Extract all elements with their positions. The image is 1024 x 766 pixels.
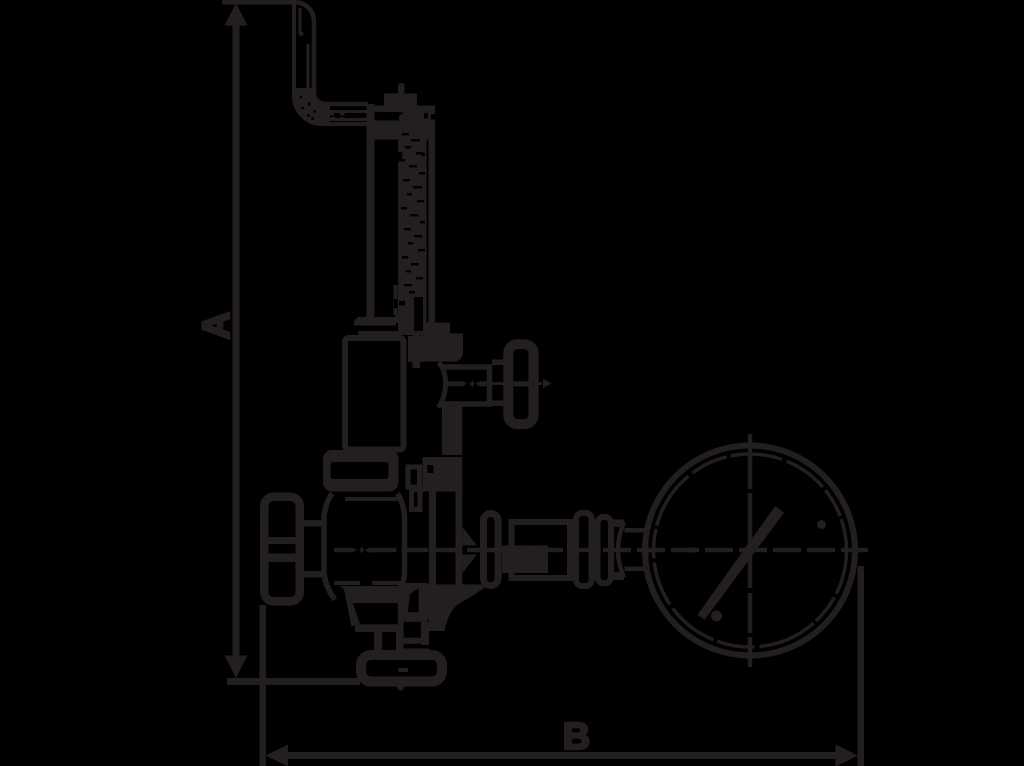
svg-text:A: A [196, 312, 238, 339]
svg-text:B: B [563, 716, 590, 758]
